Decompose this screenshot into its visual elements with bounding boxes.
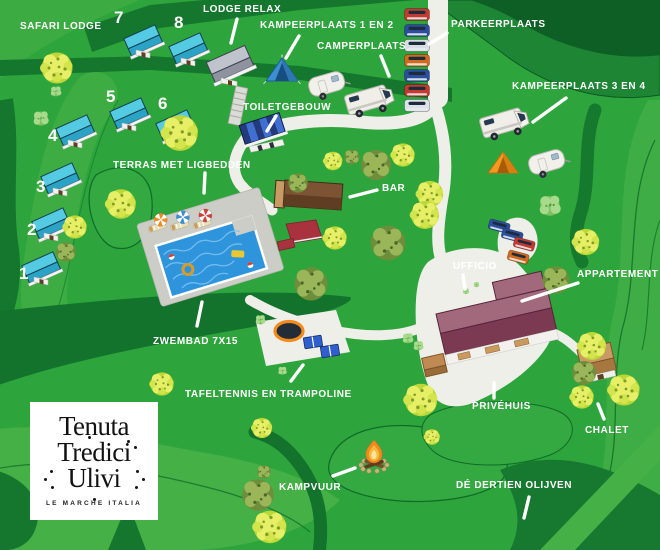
parked-car xyxy=(405,25,430,37)
lodge-number-5: 5 xyxy=(106,88,115,105)
label-toiletgebouw: TOILETGEBOUW xyxy=(243,103,331,113)
trampoline-icon xyxy=(275,322,303,341)
logo-tagline: LE MARCHE ITALIA xyxy=(30,500,158,507)
parked-car xyxy=(405,9,430,21)
lodge-number-1: 1 xyxy=(19,265,28,282)
parked-car xyxy=(405,55,430,67)
lodge-number-8: 8 xyxy=(174,14,183,31)
label-privehuis: PRIVÉHUIS xyxy=(472,402,531,412)
label-terras-met-ligbedden: TERRAS MET LIGBEDDEN xyxy=(113,161,251,171)
parked-car xyxy=(405,70,430,82)
label-safari-lodge: SAFARI LODGE xyxy=(20,22,102,32)
label-tafeltennis-en-trampoline: TAFELTENNIS EN TRAMPOLINE xyxy=(185,390,352,400)
lodge-number-4: 4 xyxy=(48,127,57,144)
parked-car xyxy=(405,100,430,112)
label-appartement: APPARTEMENT xyxy=(577,270,658,280)
pool-float xyxy=(231,250,244,258)
lodge-number-2: 2 xyxy=(27,221,36,238)
label-lodge-relax: LODGE RELAX xyxy=(203,5,281,15)
label-bar: BAR xyxy=(382,184,405,194)
logo-card: Tenuta Tredici Ulivi LE MARCHE ITALIA xyxy=(30,402,158,520)
lodge-number-3: 3 xyxy=(36,178,45,195)
lodge-number-7: 7 xyxy=(114,9,123,26)
label-kampeerplaats-1-2: KAMPEERPLAATS 1 EN 2 xyxy=(260,21,394,31)
logo-olive-dot xyxy=(50,470,53,473)
logo-line-1: Tenuta xyxy=(30,413,158,439)
bar-building-icon xyxy=(274,179,343,212)
label-zwembad: ZWEMBAD 7X15 xyxy=(153,337,238,347)
label-kampvuur: KAMPVUUR xyxy=(279,483,341,493)
logo-line-3: Ulivi xyxy=(30,465,158,491)
label-de-dertien-olijven: DÉ DERTIEN OLIJVEN xyxy=(456,481,572,491)
logo-title: Tenuta Tredici Ulivi xyxy=(30,413,158,492)
logo-olive-dot xyxy=(127,440,130,443)
parked-car xyxy=(405,40,430,52)
logo-olive-dot xyxy=(142,478,145,481)
campsite-map: SAFARI LODGE LODGE RELAX KAMPEERPLAATS 1… xyxy=(0,0,660,550)
label-kampeerplaats-3-4: KAMPEERPLAATS 3 EN 4 xyxy=(512,82,646,92)
parked-car xyxy=(405,85,430,97)
table-tennis-icon xyxy=(303,335,322,349)
logo-olive-dot xyxy=(135,486,138,489)
table-tennis-icon xyxy=(320,344,339,358)
label-camperplaats: CAMPERPLAATS xyxy=(317,42,406,52)
logo-olive-dot xyxy=(134,446,137,449)
logo-olive-dot xyxy=(44,478,47,481)
lodge-number-6: 6 xyxy=(158,95,167,112)
label-chalet: CHALET xyxy=(585,426,629,436)
logo-olive-dot xyxy=(88,436,91,439)
logo-line-2: Tredici xyxy=(30,439,158,465)
logo-olive-dot xyxy=(136,470,139,473)
logo-olive-dot xyxy=(51,486,54,489)
label-ufficio: UFFICIO xyxy=(453,262,497,272)
label-parkeerplaats: PARKEERPLAATS xyxy=(451,20,546,30)
